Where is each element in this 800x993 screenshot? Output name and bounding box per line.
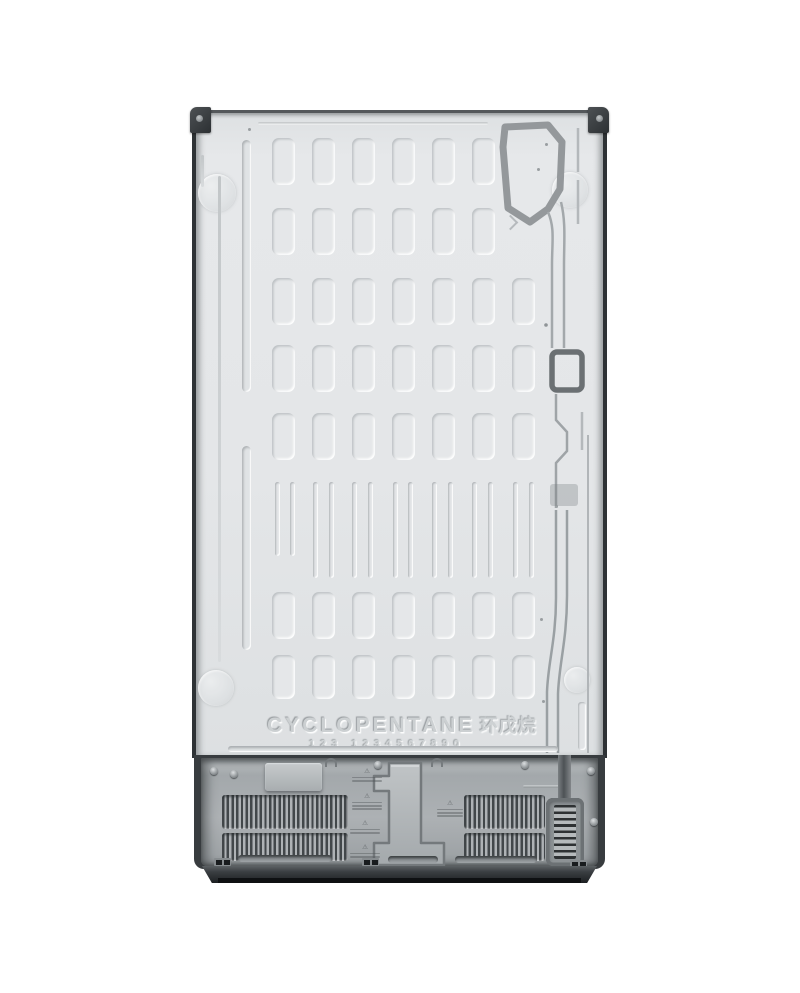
vent-slot <box>272 655 295 699</box>
vent-slot <box>432 345 455 392</box>
vent-thin-slot <box>275 482 280 556</box>
warning-icon: ⚠ <box>350 768 384 775</box>
grille-row <box>464 795 545 829</box>
vent-slot <box>312 592 335 639</box>
vent-slot <box>352 278 375 325</box>
base-lip <box>218 878 581 883</box>
connector-block <box>362 858 379 866</box>
vent-slot <box>272 345 295 392</box>
vent-slot <box>352 592 375 639</box>
drain-vent-slats <box>554 805 576 859</box>
vent-thin-slot <box>472 482 477 578</box>
bottom-flange-groove <box>228 746 558 752</box>
vent-slot <box>272 138 295 185</box>
vent-slot <box>312 278 335 325</box>
screw-icon <box>196 115 203 122</box>
vent-slot <box>392 413 415 460</box>
vent-slot <box>432 138 455 185</box>
vent-thin-slot <box>290 482 295 556</box>
vent-slot <box>352 345 375 392</box>
vent-thin-slot <box>329 482 334 578</box>
vent-slot <box>312 208 335 255</box>
vent-slot <box>272 592 295 639</box>
vent-thin-slot <box>408 482 413 578</box>
vent-slot <box>272 413 295 460</box>
product-photo-scene: CYCLOPENTANE 环戊烷 123 1234567890 <box>0 0 800 993</box>
vent-slot <box>312 345 335 392</box>
mount-hook <box>325 758 337 767</box>
vent-slot <box>272 278 295 325</box>
vent-slot <box>352 655 375 699</box>
vent-slot <box>312 413 335 460</box>
vent-slot <box>352 413 375 460</box>
left-vent-grille <box>222 795 348 861</box>
bottom-slot <box>388 856 438 863</box>
screw-icon <box>590 818 598 826</box>
vent-slot <box>312 655 335 699</box>
vent-slot <box>432 592 455 639</box>
corner-bracket-left <box>190 107 211 133</box>
embossed-warning-text: ⚠ <box>348 820 382 835</box>
warning-icon: ⚠ <box>348 820 382 827</box>
vent-slot <box>432 413 455 460</box>
vent-slot <box>352 208 375 255</box>
stamped-ridge <box>523 785 560 788</box>
vent-slot <box>392 278 415 325</box>
drain-vent <box>546 798 584 866</box>
vent-slot <box>272 208 295 255</box>
vent-slot <box>392 208 415 255</box>
vent-thin-slot <box>352 482 357 578</box>
vent-slot <box>312 138 335 185</box>
embossed-warning-text: ⚠ <box>350 793 384 812</box>
vent-thin-slot <box>393 482 398 578</box>
warning-icon: ⚠ <box>348 844 382 851</box>
warning-icon: ⚠ <box>435 800 465 807</box>
embossed-warning-text: ⚠ <box>435 800 465 819</box>
stamped-plateau <box>265 763 322 791</box>
grille-row <box>222 795 348 829</box>
screw-icon <box>587 767 595 775</box>
vent-thin-slot <box>448 482 453 578</box>
screw-icon <box>521 761 529 769</box>
vent-slot <box>392 345 415 392</box>
vent-slot <box>432 278 455 325</box>
embossed-warning-text: ⚠ <box>350 768 384 783</box>
vent-slot <box>432 208 455 255</box>
vent-slot <box>432 655 455 699</box>
bottom-slot <box>455 856 537 863</box>
screw-icon <box>374 761 382 769</box>
tubing-channel <box>492 120 592 756</box>
right-vent-grille <box>464 795 545 861</box>
vent-slot <box>392 655 415 699</box>
base-plinth <box>202 866 597 883</box>
bottom-slot <box>238 855 332 862</box>
vent-slot <box>392 592 415 639</box>
corner-bracket-right <box>588 107 609 133</box>
vent-thin-slot <box>432 482 437 578</box>
screw-icon <box>596 115 603 122</box>
connector-block <box>214 858 231 866</box>
vent-slot <box>392 138 415 185</box>
vent-slot <box>352 138 375 185</box>
warning-icon: ⚠ <box>350 793 384 800</box>
vent-thin-slot <box>368 482 373 578</box>
cyclopentane-emboss-text-cn: 环戊烷 <box>480 716 537 736</box>
screw-icon <box>210 767 218 775</box>
refrigerator-back: CYCLOPENTANE 环戊烷 123 1234567890 <box>192 110 607 884</box>
screw-icon <box>230 770 238 778</box>
vent-thin-slot <box>313 482 318 578</box>
